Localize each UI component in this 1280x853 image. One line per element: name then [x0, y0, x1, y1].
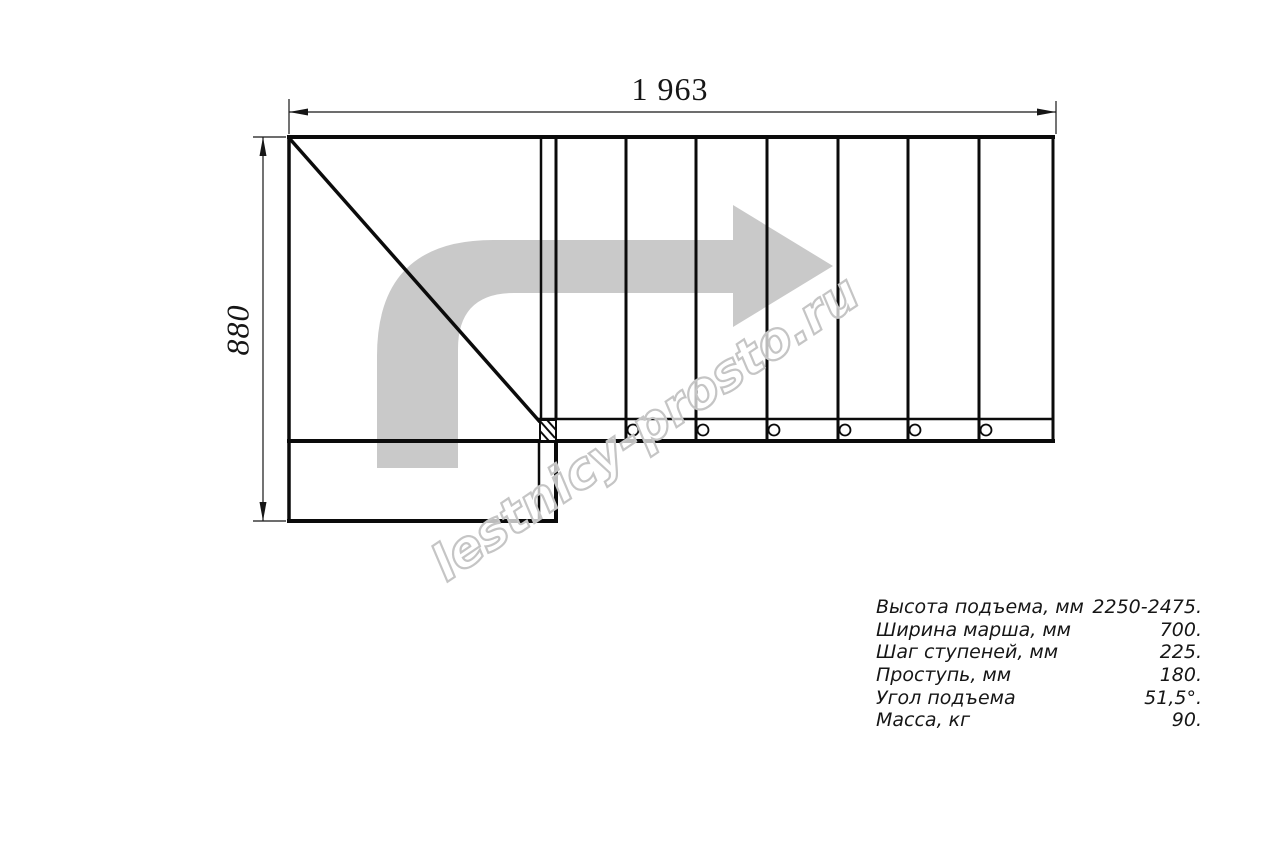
staircase-drawing-page: 1 963 880 lestnicy-prosto.ru Высота подъ… [0, 0, 1280, 853]
dimension-arrowhead-left [289, 109, 308, 116]
spec-value: 90. [1172, 709, 1202, 732]
dimension-arrowhead-up [260, 137, 267, 156]
baluster-circle [698, 425, 709, 436]
baluster-circle [769, 425, 780, 436]
spec-label: Шаг ступеней, мм [876, 641, 1058, 664]
spec-table: Высота подъема, мм 2250-2475. Ширина мар… [876, 596, 1202, 732]
baluster-circle [910, 425, 921, 436]
baluster-circle [840, 425, 851, 436]
spec-value: 225. [1160, 641, 1202, 664]
spec-row: Высота подъема, мм 2250-2475. [876, 596, 1202, 619]
newel-post-hatch [540, 420, 556, 441]
spec-value: 700. [1160, 619, 1202, 642]
baluster-circles [628, 425, 992, 436]
baluster-circle [628, 425, 639, 436]
spec-label: Ширина марша, мм [876, 619, 1071, 642]
spec-label: Высота подъема, мм [876, 596, 1084, 619]
spec-value: 2250-2475. [1092, 596, 1202, 619]
dimension-left [253, 137, 286, 521]
left-dimension-label: 880 [220, 305, 257, 356]
spec-row: Проступь, мм 180. [876, 664, 1202, 687]
top-dimension-label: 1 963 [632, 71, 709, 108]
spec-row: Масса, кг 90. [876, 709, 1202, 732]
spec-row: Шаг ступеней, мм 225. [876, 641, 1202, 664]
baluster-circle [981, 425, 992, 436]
dimension-arrowhead-right [1037, 109, 1056, 116]
spec-label: Масса, кг [876, 709, 970, 732]
spec-row: Угол подъема 51,5°. [876, 687, 1202, 710]
spec-value: 51,5°. [1144, 687, 1202, 710]
spec-row: Ширина марша, мм 700. [876, 619, 1202, 642]
direction-arrow-icon [377, 205, 833, 468]
dimension-arrowhead-down [260, 502, 267, 521]
spec-label: Проступь, мм [876, 664, 1011, 687]
spec-label: Угол подъема [876, 687, 1016, 710]
spec-value: 180. [1160, 664, 1202, 687]
